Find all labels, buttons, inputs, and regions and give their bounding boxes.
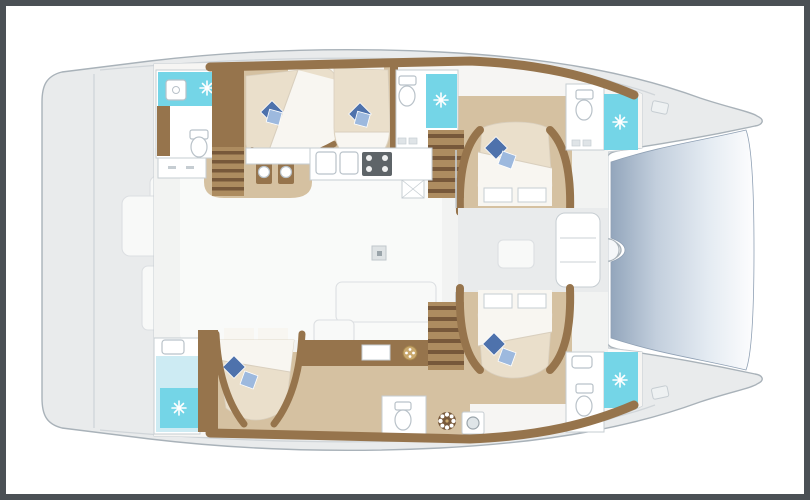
bow-trampoline — [611, 130, 754, 370]
port-aft-cabin-bed — [246, 63, 340, 158]
forward-bench — [556, 213, 600, 287]
toilet-icon — [399, 76, 416, 106]
bath-cabinet — [158, 158, 206, 178]
headboard-shelf — [224, 328, 254, 340]
catamaran-floor-plan — [0, 0, 810, 500]
forward-cockpit — [458, 208, 608, 292]
salon-table — [336, 282, 436, 322]
stove-icon — [362, 152, 392, 176]
forward-table — [498, 240, 534, 268]
toilet-icon — [576, 384, 593, 416]
port-mid-cabin-bed — [334, 63, 390, 161]
compass-rose — [403, 346, 417, 360]
starboard-aft-bathroom — [154, 338, 200, 434]
headboard-shelf — [258, 328, 288, 340]
toilet-icon — [576, 90, 593, 120]
toilet-icon — [190, 130, 208, 157]
sink-icon — [316, 152, 336, 174]
chart-sideboard — [300, 340, 432, 366]
vanity-cabinet — [157, 106, 170, 156]
dishwasher — [402, 180, 424, 198]
port-wardrobe — [212, 63, 244, 147]
sink-icon — [162, 340, 184, 354]
mast-post — [372, 246, 386, 260]
port-aft-stairs — [212, 147, 244, 196]
tv-screen — [362, 345, 390, 360]
sink-icon — [340, 152, 358, 174]
sink-icon — [572, 356, 592, 368]
sink-icon — [166, 80, 186, 100]
washer-icon — [462, 412, 484, 434]
rosette-icon — [438, 412, 456, 430]
toilet-icon — [395, 402, 411, 430]
